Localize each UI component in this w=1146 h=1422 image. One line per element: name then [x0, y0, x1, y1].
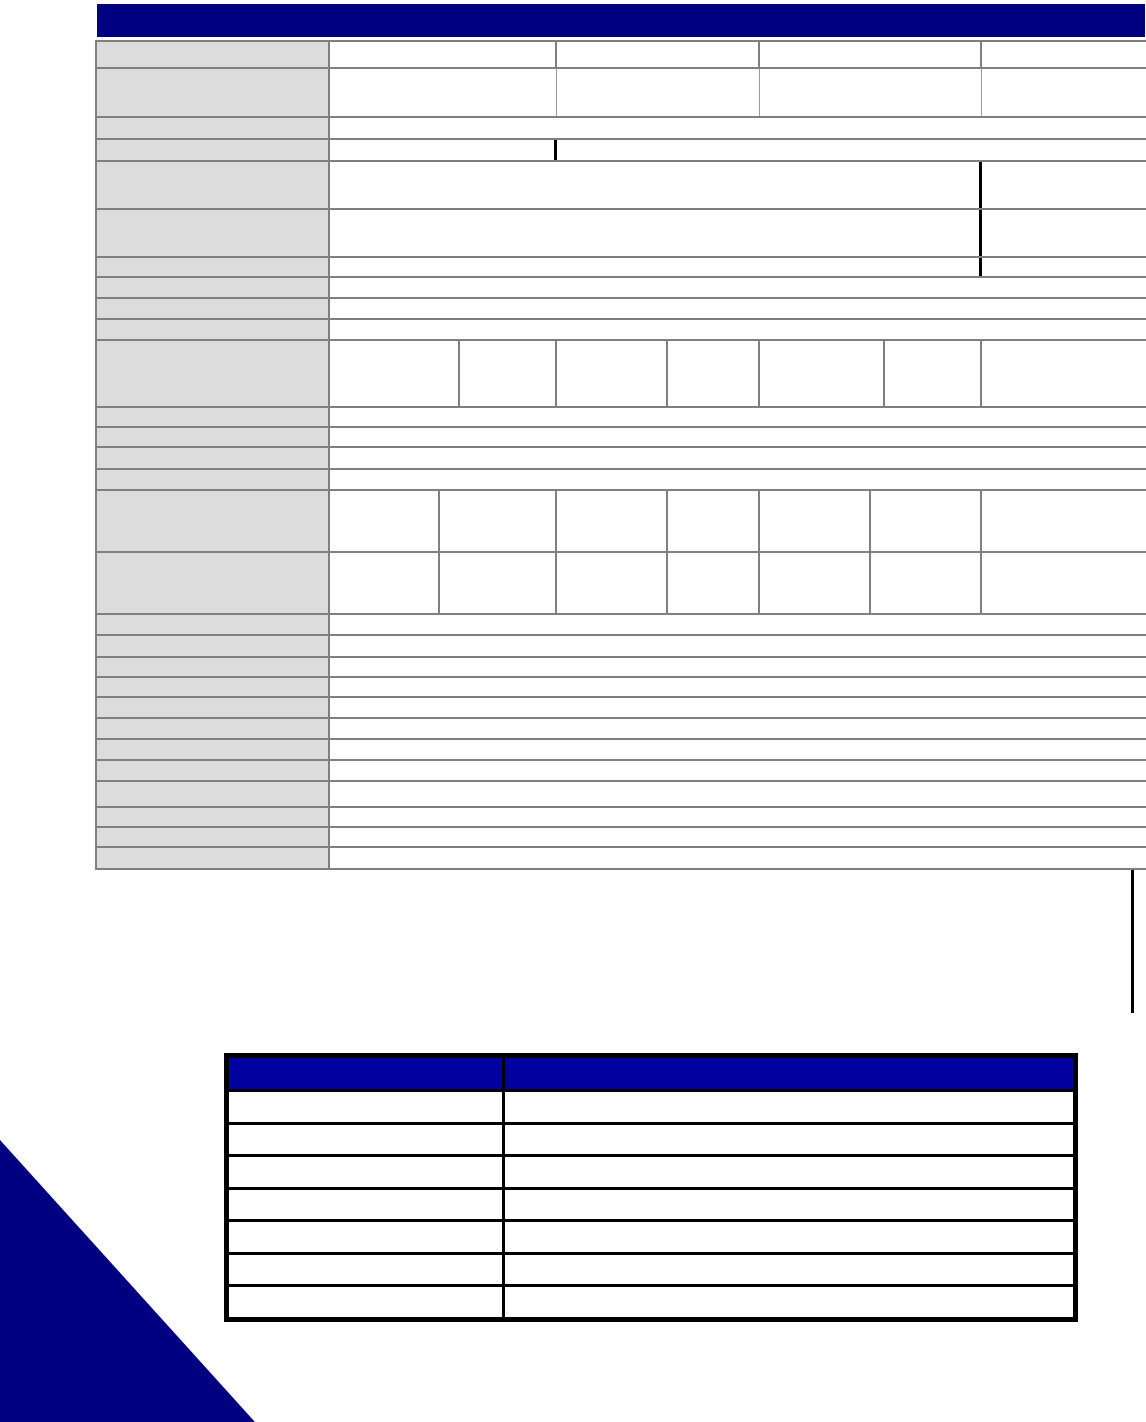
notes-label-cell [229, 1125, 505, 1155]
notes-header-cell [229, 1058, 505, 1089]
row-label-cell [97, 69, 330, 116]
notes-value-cell [505, 1190, 1073, 1220]
notes-value-cell [505, 1222, 1073, 1252]
spec-table-row [97, 828, 1146, 848]
value-cell [982, 258, 1146, 276]
spec-table-row [97, 719, 1146, 740]
value-cell [982, 69, 1146, 116]
value-cell [982, 341, 1146, 406]
spec-table-row [97, 140, 1146, 162]
spec-table-row [97, 118, 1146, 140]
value-cell [760, 553, 871, 613]
value-cell [871, 553, 982, 613]
value-cell [557, 140, 1146, 160]
notes-table-row [229, 1122, 1073, 1155]
row-label-cell [97, 782, 330, 806]
value-cell [330, 42, 557, 67]
row-label-cell [97, 740, 330, 759]
spec-table-row [97, 320, 1146, 341]
value-cell [557, 553, 668, 613]
value-cell [330, 118, 1146, 138]
notes-table-row [229, 1284, 1073, 1317]
spec-table-row [97, 162, 1146, 210]
spec-table [95, 40, 1146, 870]
corner-triangle-decoration [0, 1140, 255, 1422]
spec-table-row [97, 615, 1146, 636]
row-label-cell [97, 341, 330, 406]
value-cell [330, 719, 1146, 738]
notes-label-cell [229, 1255, 505, 1285]
spec-table-row [97, 740, 1146, 761]
row-label-cell [97, 636, 330, 656]
value-cell [760, 42, 982, 67]
notes-table [224, 1053, 1078, 1322]
value-cell [982, 553, 1146, 613]
row-label-cell [97, 118, 330, 138]
value-cell [440, 491, 557, 551]
value-cell [330, 658, 1146, 676]
value-cell [330, 678, 1146, 696]
value-cell [982, 162, 1146, 208]
value-cell [330, 140, 557, 160]
value-cell [440, 553, 557, 613]
spec-table-row [97, 278, 1146, 299]
row-label-cell [97, 761, 330, 780]
value-cell [330, 848, 1146, 868]
notes-value-cell [505, 1125, 1073, 1155]
spec-table-row [97, 658, 1146, 678]
spec-table-row [97, 258, 1146, 278]
value-cell [330, 299, 1146, 318]
value-cell [460, 341, 557, 406]
notes-value-cell [505, 1092, 1073, 1122]
page: { "document": { "kind": "blank specifica… [0, 0, 1146, 1422]
value-cell [330, 69, 557, 116]
value-cell [330, 636, 1146, 656]
value-cell [330, 470, 1146, 489]
notes-value-cell [505, 1157, 1073, 1187]
value-cell [982, 491, 1146, 551]
notes-table-row [229, 1187, 1073, 1220]
row-label-cell [97, 428, 330, 446]
spec-table-row [97, 698, 1146, 719]
row-label-cell [97, 278, 330, 297]
spec-table-row [97, 69, 1146, 118]
trailing-vertical-line [1131, 870, 1134, 1013]
notes-value-cell [505, 1255, 1073, 1285]
value-cell [557, 491, 668, 551]
value-cell [668, 341, 760, 406]
spec-table-row [97, 210, 1146, 258]
notes-value-cell [505, 1287, 1073, 1317]
row-label-cell [97, 448, 330, 468]
value-cell [330, 278, 1146, 297]
value-cell [330, 448, 1146, 468]
value-cell [760, 341, 885, 406]
notes-table-row [229, 1219, 1073, 1252]
spec-table-row [97, 761, 1146, 782]
notes-label-cell [229, 1157, 505, 1187]
notes-table-header-row [229, 1058, 1073, 1089]
spec-table-row [97, 341, 1146, 408]
spec-table-row [97, 299, 1146, 320]
row-label-cell [97, 658, 330, 676]
value-cell [760, 491, 871, 551]
row-label-cell [97, 470, 330, 489]
notes-header-cell [505, 1058, 1073, 1089]
spec-table-row [97, 428, 1146, 448]
row-label-cell [97, 162, 330, 208]
value-cell [330, 491, 440, 551]
notes-label-cell [229, 1287, 505, 1317]
row-label-cell [97, 698, 330, 717]
notes-label-cell [229, 1222, 505, 1252]
value-cell [330, 553, 440, 613]
row-label-cell [97, 408, 330, 426]
value-cell [330, 428, 1146, 446]
row-label-cell [97, 491, 330, 551]
value-cell [982, 42, 1146, 67]
spec-table-row [97, 553, 1146, 615]
row-label-cell [97, 42, 330, 67]
value-cell [330, 320, 1146, 339]
spec-table-row [97, 678, 1146, 698]
row-label-cell [97, 828, 330, 846]
notes-table-row [229, 1089, 1073, 1122]
value-cell [557, 341, 668, 406]
value-cell [330, 698, 1146, 717]
value-cell [330, 210, 982, 256]
value-cell [330, 740, 1146, 759]
value-cell [668, 491, 760, 551]
value-cell [330, 408, 1146, 426]
row-label-cell [97, 615, 330, 634]
value-cell [557, 69, 760, 116]
value-cell [760, 69, 982, 116]
value-cell [330, 258, 982, 276]
spec-table-row [97, 408, 1146, 428]
row-label-cell [97, 553, 330, 613]
value-cell [330, 828, 1146, 846]
value-cell [557, 42, 760, 67]
row-label-cell [97, 678, 330, 696]
spec-table-row [97, 448, 1146, 470]
title-bar [97, 4, 1145, 37]
spec-table-row [97, 808, 1146, 828]
spec-table-row [97, 782, 1146, 808]
value-cell [982, 210, 1146, 256]
value-cell [885, 341, 982, 406]
row-label-cell [97, 210, 330, 256]
row-label-cell [97, 258, 330, 276]
spec-table-row [97, 491, 1146, 553]
value-cell [330, 808, 1146, 826]
value-cell [330, 782, 1146, 806]
notes-table-row [229, 1252, 1073, 1285]
spec-table-row [97, 42, 1146, 69]
value-cell [330, 162, 982, 208]
spec-table-row [97, 636, 1146, 658]
value-cell [871, 491, 982, 551]
notes-table-row [229, 1154, 1073, 1187]
row-label-cell [97, 719, 330, 738]
row-label-cell [97, 320, 330, 339]
spec-table-row [97, 470, 1146, 491]
value-cell [668, 553, 760, 613]
row-label-cell [97, 299, 330, 318]
value-cell [330, 615, 1146, 634]
row-label-cell [97, 848, 330, 868]
spec-table-row [97, 848, 1146, 868]
value-cell [330, 341, 460, 406]
value-cell [330, 761, 1146, 780]
notes-label-cell [229, 1092, 505, 1122]
row-label-cell [97, 808, 330, 826]
row-label-cell [97, 140, 330, 160]
notes-label-cell [229, 1190, 505, 1220]
